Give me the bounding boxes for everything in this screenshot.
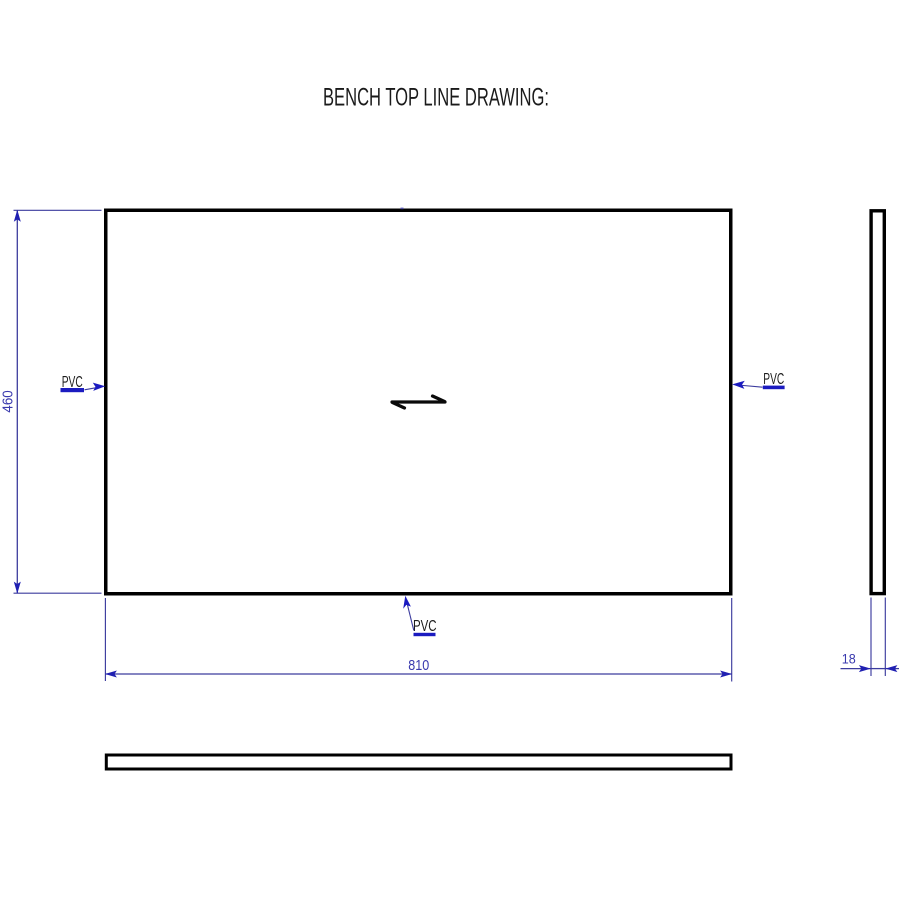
svg-text:BENCH TOP LINE DRAWING:: BENCH TOP LINE DRAWING:	[323, 84, 549, 112]
svg-text:810: 810	[408, 658, 429, 674]
svg-text:460: 460	[0, 390, 17, 412]
svg-text:PVC: PVC	[413, 618, 437, 635]
svg-text:18: 18	[842, 652, 856, 668]
